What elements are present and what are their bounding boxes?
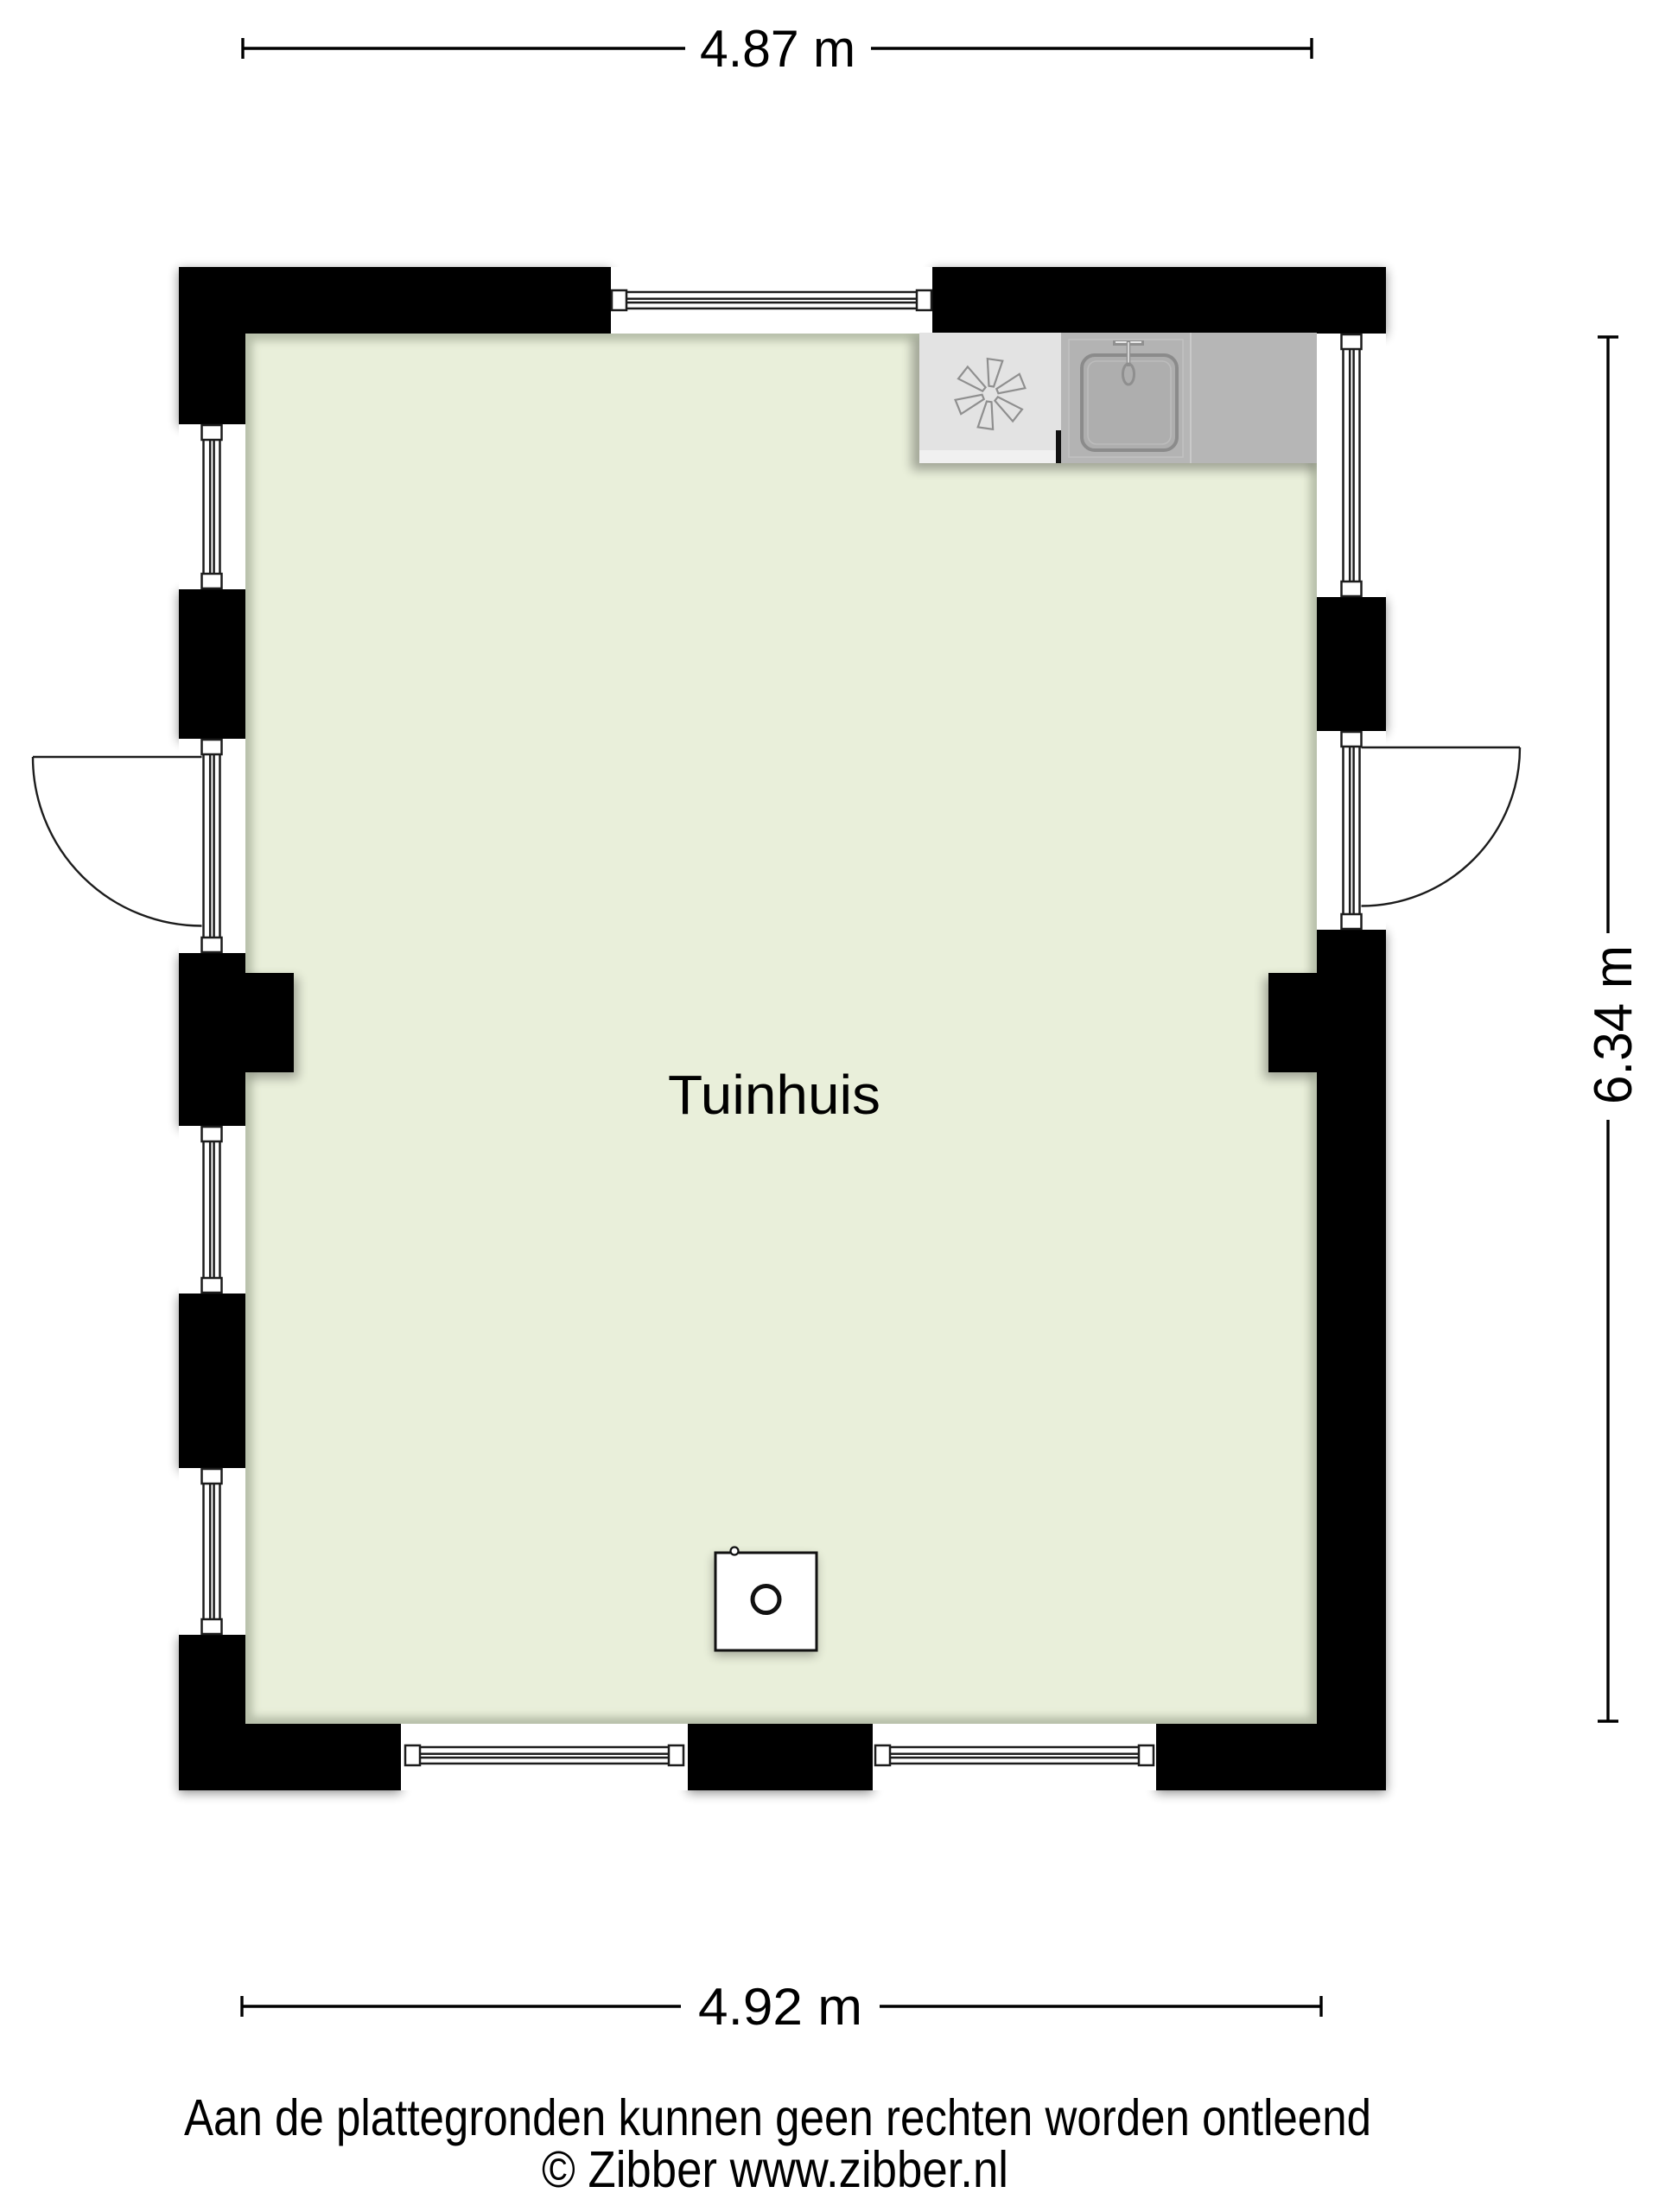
svg-text:6.34 m: 6.34 m (1584, 945, 1643, 1104)
svg-text:Aan de plattegronden kunnen ge: Aan de plattegronden kunnen geen rechten… (184, 2089, 1371, 2146)
svg-text:Tuinhuis: Tuinhuis (668, 1064, 880, 1126)
svg-text:4.92 m: 4.92 m (698, 1978, 862, 2036)
svg-text:© Zibber www.zibber.nl: © Zibber www.zibber.nl (542, 2141, 1008, 2198)
svg-text:4.87 m: 4.87 m (700, 20, 855, 78)
